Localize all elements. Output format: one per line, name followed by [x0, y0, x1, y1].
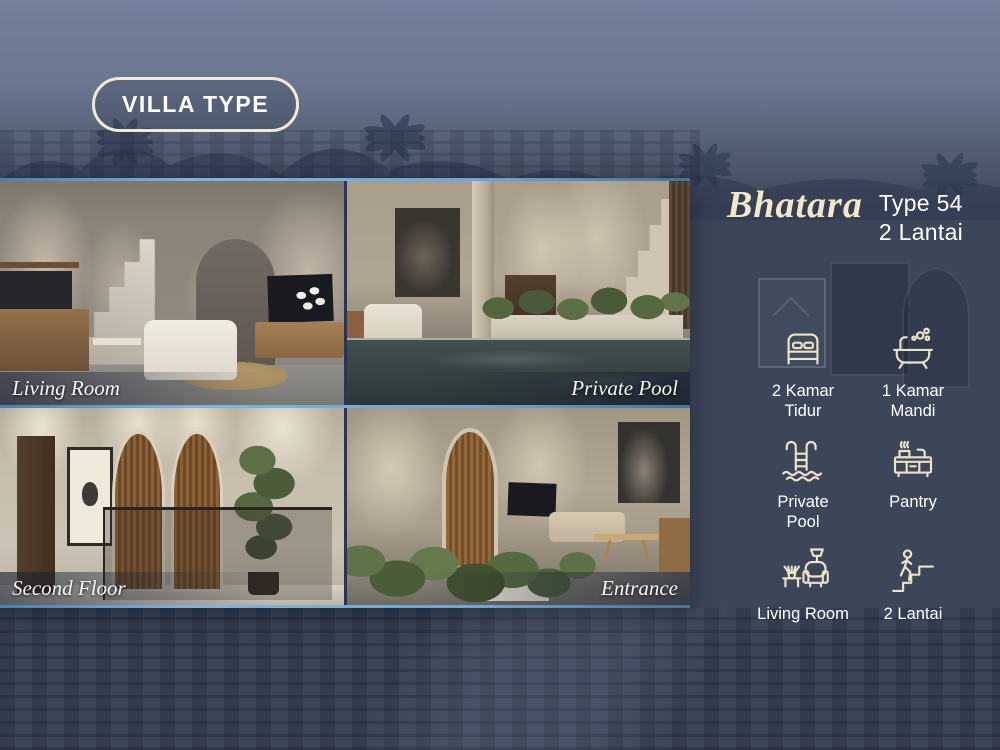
feature-label: 1 Kamar Mandi — [882, 381, 944, 421]
feature-bedrooms: 2 Kamar Tidur — [752, 322, 854, 421]
villa-name: Bhatara — [727, 186, 863, 226]
photo-caption: Living Room — [0, 372, 344, 405]
feature-label: Private Pool — [777, 492, 828, 532]
roof-tiles-texture-top — [0, 130, 700, 180]
photo-second-floor: Second Floor — [0, 408, 344, 605]
feature-label: 2 Lantai — [884, 604, 943, 624]
bed-icon — [776, 322, 830, 376]
tv-console — [255, 322, 344, 358]
feature-label: 2 Kamar Tidur — [772, 381, 834, 421]
pool-ladder-icon — [776, 433, 830, 487]
stairs-icon — [886, 545, 940, 599]
photo-caption: Entrance — [347, 572, 690, 605]
shelf — [0, 262, 79, 269]
feature-living-room: Living Room — [752, 545, 854, 624]
grid-accent-line-bottom — [0, 605, 690, 608]
photo-private-pool: Private Pool — [347, 181, 690, 405]
coffee-table — [93, 338, 141, 345]
photo-caption: Second Floor — [0, 572, 344, 605]
living-room-icon — [776, 545, 830, 599]
orchid — [289, 284, 330, 322]
photo-living-room: Living Room — [0, 181, 344, 405]
wood-desk — [594, 534, 659, 540]
staircase — [79, 239, 155, 364]
roof-tiles-texture-bottom — [0, 608, 1000, 750]
feature-pantry: Pantry — [862, 433, 964, 512]
tv — [508, 482, 557, 517]
feature-label: Living Room — [757, 604, 849, 624]
feature-grid: 2 Kamar Tidur 1 Kamar Mandi Private Poo — [752, 322, 964, 624]
wood-cabinet — [659, 518, 690, 571]
villa-type-number: Type 54 — [879, 189, 963, 218]
bathtub-icon — [886, 322, 940, 376]
villa-type-slide: VILLA TYPE Bhatara Type 54 2 Lantai Livi… — [0, 0, 1000, 750]
kitchen-cabinet — [0, 309, 89, 372]
plants — [477, 277, 690, 329]
feature-private-pool: Private Pool — [752, 433, 854, 532]
feature-label: Pantry — [889, 492, 937, 512]
kitchen-appliance — [0, 271, 72, 309]
pantry-icon — [886, 433, 940, 487]
elephant-artwork — [618, 422, 680, 503]
elephant-artwork — [395, 208, 460, 298]
feature-bathrooms: 1 Kamar Mandi — [862, 322, 964, 421]
villa-type-badge[interactable]: VILLA TYPE — [92, 77, 299, 132]
feature-two-floors: 2 Lantai — [862, 545, 964, 624]
dark-door — [17, 436, 55, 594]
villa-title: Bhatara Type 54 2 Lantai — [727, 186, 963, 247]
photo-entrance: Entrance — [347, 408, 690, 605]
photo-grid: Living Room Private Pool Secon — [0, 178, 690, 608]
photo-caption: Private Pool — [347, 372, 690, 405]
villa-floors: 2 Lantai — [879, 218, 963, 247]
